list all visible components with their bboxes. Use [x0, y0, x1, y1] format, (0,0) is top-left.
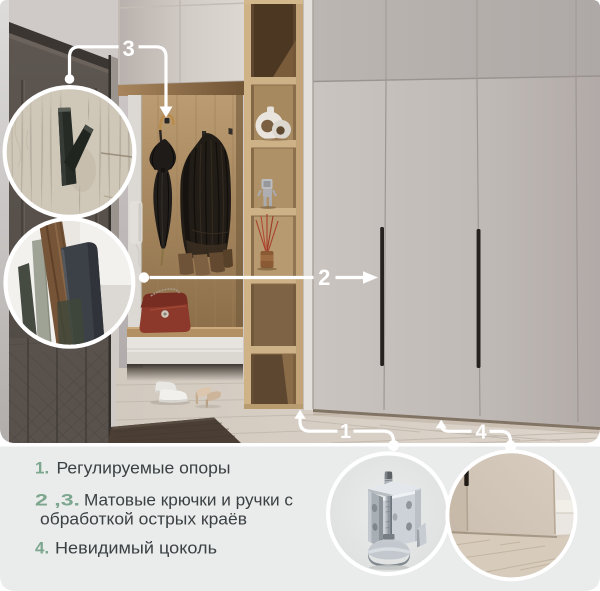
svg-text:1: 1	[340, 421, 351, 443]
svg-text:Невидимый цоколь: Невидимый цоколь	[55, 539, 217, 558]
svg-text:2 ,3.: 2 ,3.	[35, 491, 80, 510]
svg-text:Регулируемые опоры: Регулируемые опоры	[57, 459, 231, 478]
svg-text:2: 2	[318, 265, 330, 290]
svg-text:обработкой острых краёв: обработкой острых краёв	[40, 510, 247, 529]
svg-text:4.: 4.	[35, 539, 49, 558]
svg-text:1.: 1.	[35, 459, 49, 478]
svg-text:3: 3	[122, 36, 134, 61]
svg-text:Матовые крючки и ручки с: Матовые крючки и ручки с	[84, 491, 293, 510]
svg-text:4: 4	[475, 421, 487, 443]
